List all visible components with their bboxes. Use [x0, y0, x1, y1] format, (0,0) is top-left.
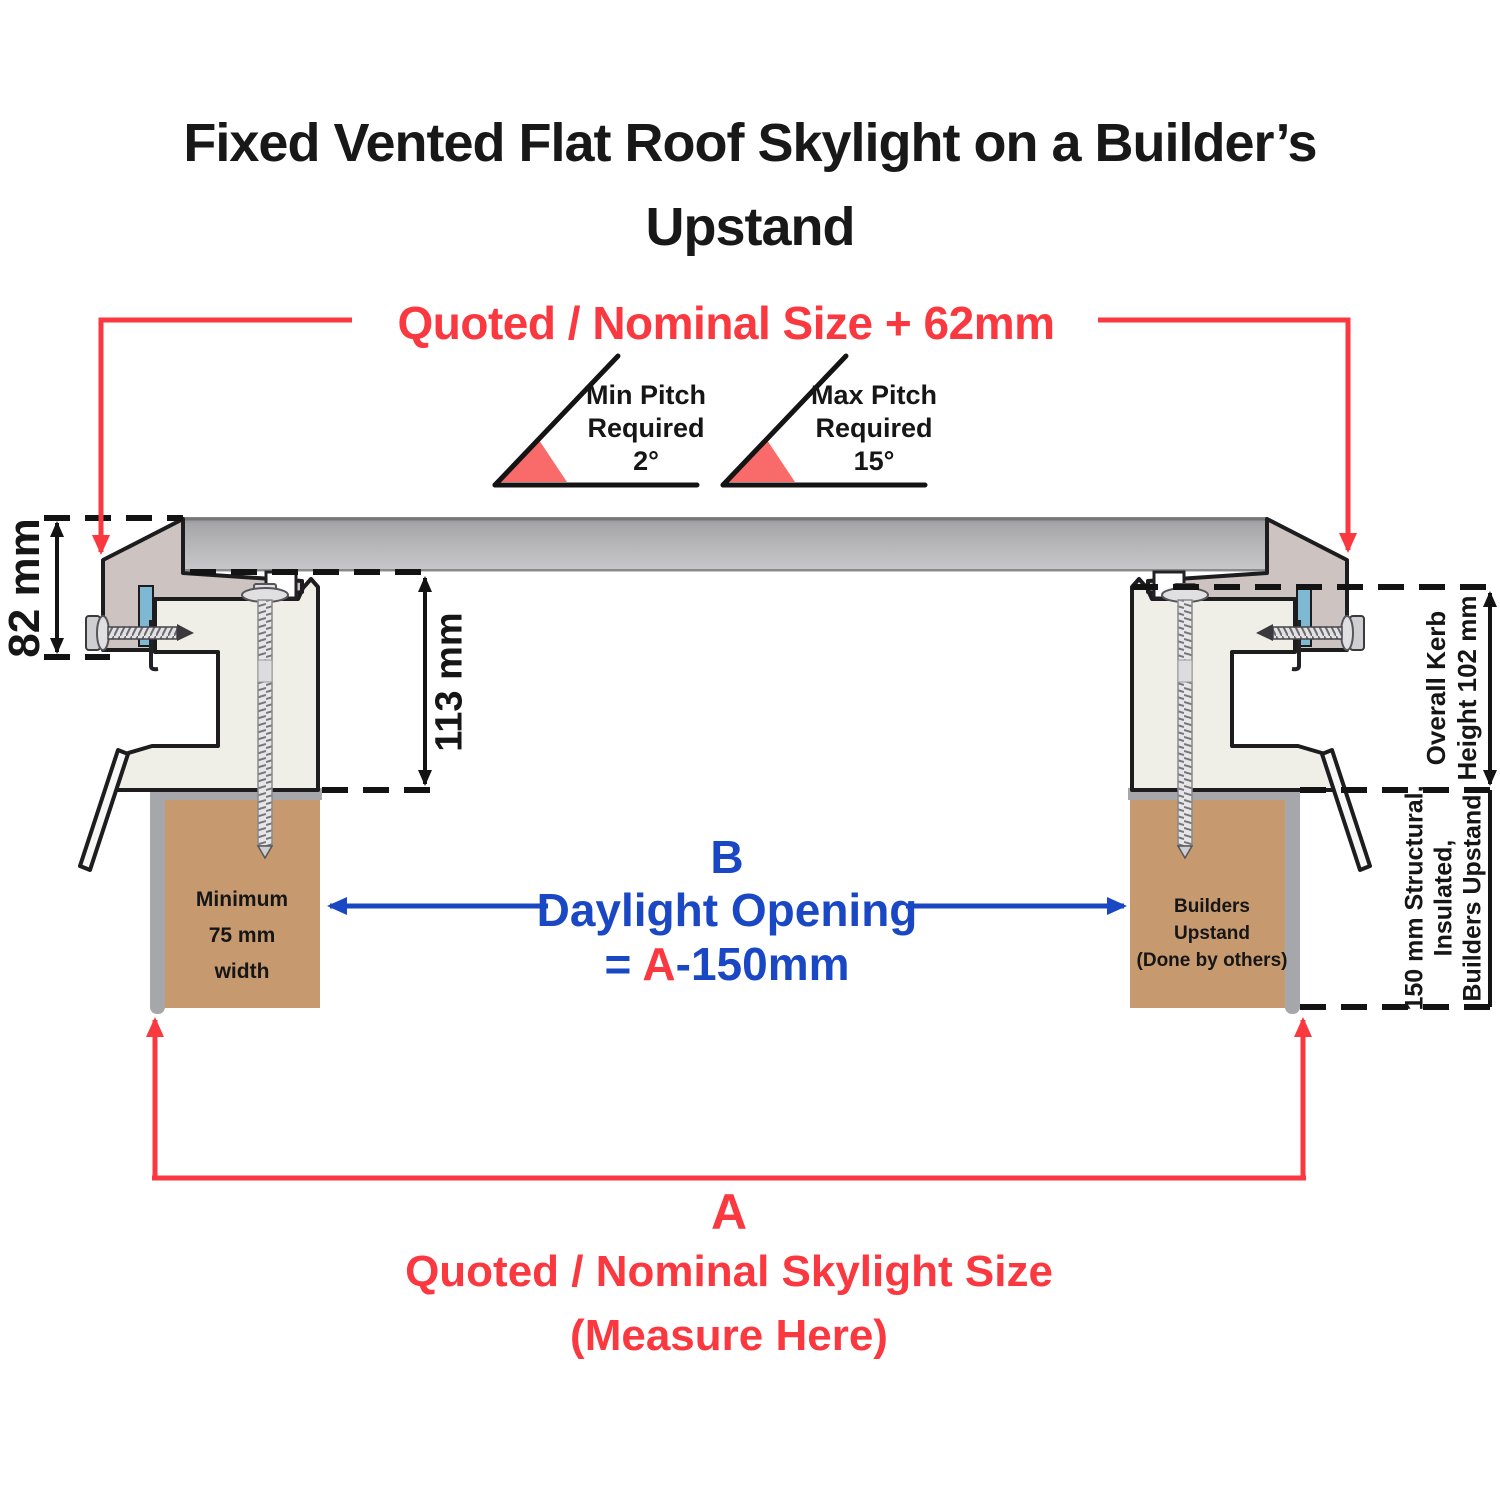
- quoted-nominal-size-label: Quoted / Nominal Size + 62mm: [398, 296, 1055, 350]
- max-pitch-label: Max Pitch Required 15°: [811, 379, 937, 478]
- kerb-inner-height-dimension: 113 mm: [429, 582, 472, 782]
- min-pitch-label: Min Pitch Required 2°: [586, 379, 706, 478]
- daylight-opening-letter: B: [710, 830, 743, 884]
- min-pitch-value: 2°: [586, 445, 706, 478]
- minimum-width-label: Minimum 75 mm width: [196, 882, 288, 990]
- size-ref-letter: A: [642, 938, 675, 990]
- daylight-opening-label: Daylight Opening: [537, 883, 918, 937]
- max-pitch-value: 15°: [811, 445, 937, 478]
- frame-height-dimension: 82 mm: [0, 478, 50, 698]
- page-title-line2: Upstand: [646, 196, 855, 258]
- builders-upstand-label: Builders Upstand (Done by others): [1137, 893, 1288, 974]
- measure-here-label: (Measure Here): [570, 1311, 888, 1361]
- bottom-size-bracket: [152, 1020, 1306, 1178]
- glass-panel: [183, 517, 1267, 572]
- nominal-size-letter: A: [711, 1183, 747, 1241]
- skylight-diagram-page: Fixed Vented Flat Roof Skylight on a Bui…: [0, 0, 1500, 1500]
- page-title-line1: Fixed Vented Flat Roof Skylight on a Bui…: [183, 112, 1316, 174]
- daylight-opening-formula: = A-150mm: [604, 937, 849, 991]
- nominal-skylight-size-label: Quoted / Nominal Skylight Size: [405, 1247, 1053, 1297]
- structural-upstand-label: 150 mm Structural, Insulated, Builders U…: [1401, 758, 1488, 1038]
